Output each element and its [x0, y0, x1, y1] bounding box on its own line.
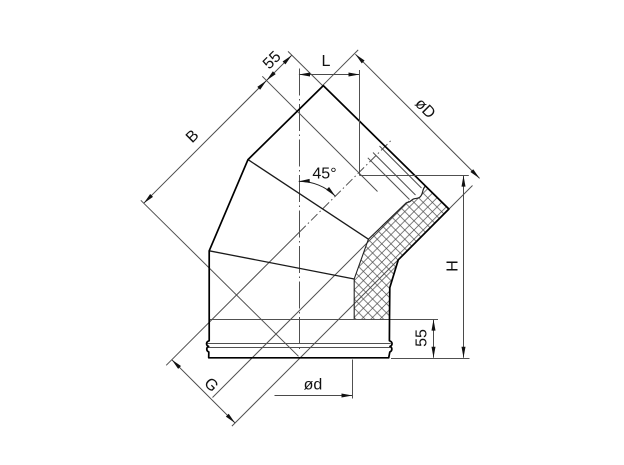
svg-text:55: 55 [414, 329, 431, 347]
svg-text:H: H [445, 260, 462, 272]
svg-text:ød: ød [304, 377, 323, 394]
svg-text:45°: 45° [312, 165, 336, 182]
svg-text:L: L [322, 53, 331, 70]
